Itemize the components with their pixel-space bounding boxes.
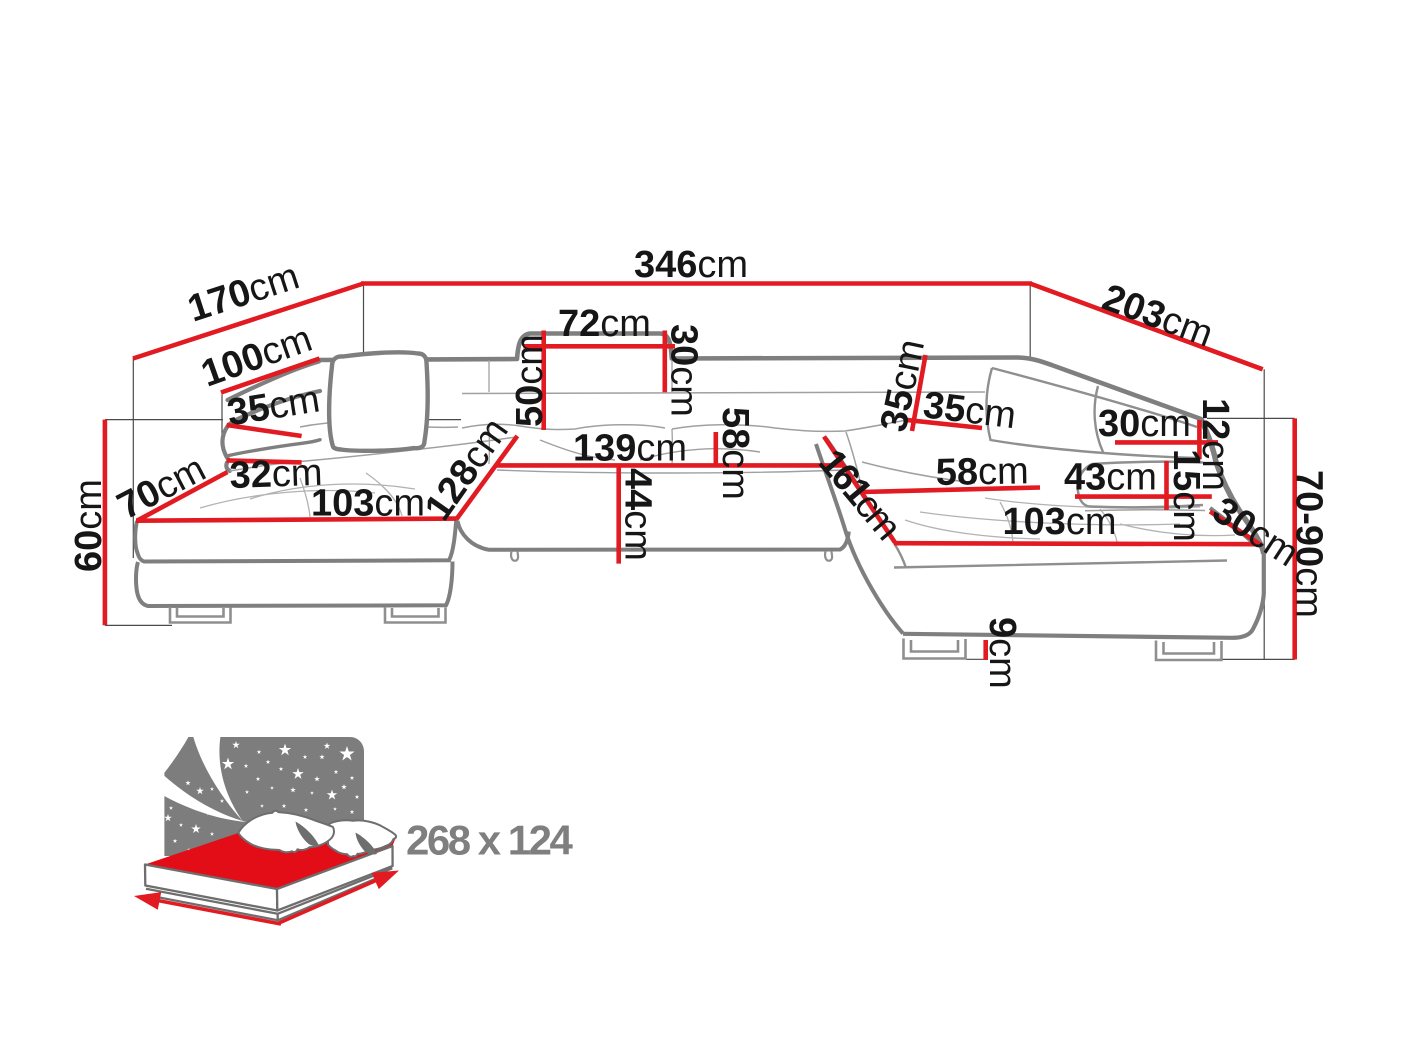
svg-text:15cm: 15cm <box>1165 449 1207 542</box>
svg-text:72cm: 72cm <box>558 303 651 345</box>
svg-text:139cm: 139cm <box>573 428 687 470</box>
svg-text:346cm: 346cm <box>634 244 748 286</box>
svg-text:70-90cm: 70-90cm <box>1288 470 1330 618</box>
svg-text:58cm: 58cm <box>714 407 756 500</box>
svg-text:43cm: 43cm <box>1064 457 1157 499</box>
svg-text:44cm: 44cm <box>617 468 659 561</box>
svg-text:58cm: 58cm <box>935 450 1029 494</box>
svg-text:103cm: 103cm <box>311 483 425 525</box>
svg-text:50cm: 50cm <box>509 334 551 427</box>
svg-text:30cm: 30cm <box>1098 403 1191 445</box>
svg-text:30cm: 30cm <box>663 324 705 417</box>
svg-text:268 x 124: 268 x 124 <box>406 817 573 864</box>
svg-text:103cm: 103cm <box>1003 501 1117 543</box>
svg-text:32cm: 32cm <box>229 452 323 497</box>
svg-text:9cm: 9cm <box>981 617 1023 689</box>
svg-text:60cm: 60cm <box>68 479 110 572</box>
